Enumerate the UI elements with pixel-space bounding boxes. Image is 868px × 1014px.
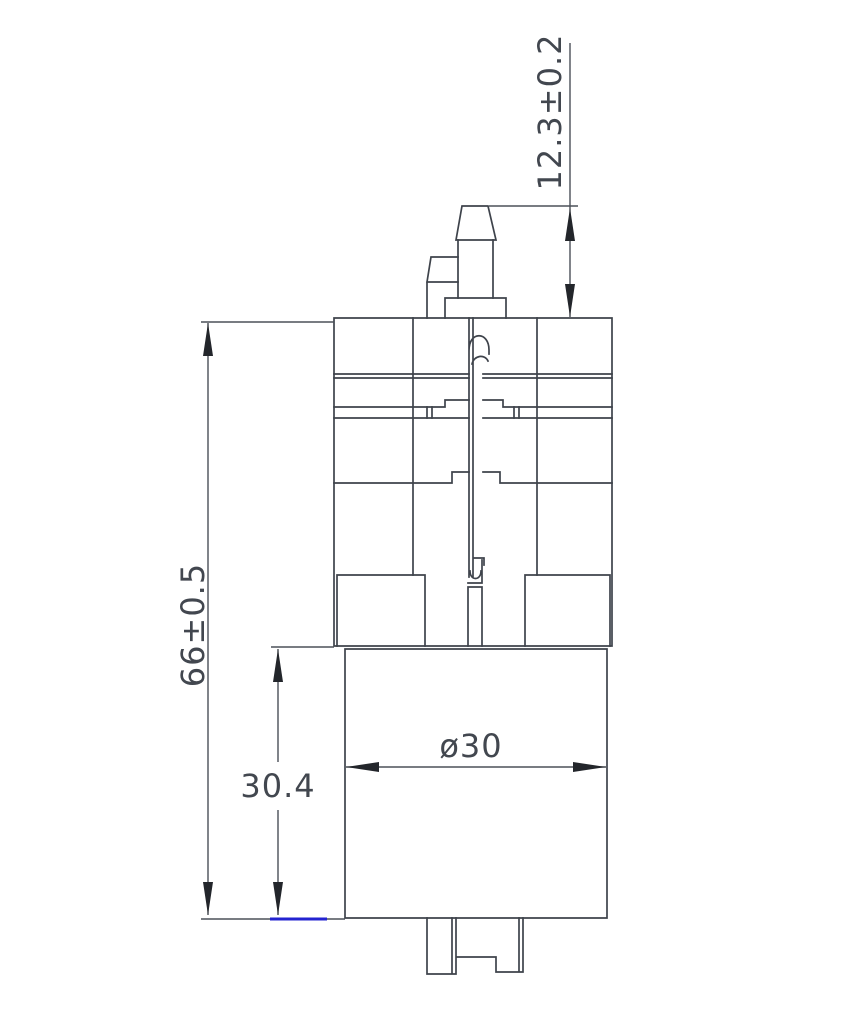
motor-height-arrow-down bbox=[273, 882, 283, 915]
pump-head-section bbox=[334, 318, 612, 646]
dim-overall-height-label: 66±0.5 bbox=[174, 563, 212, 687]
motor-diameter-arrow-left bbox=[346, 762, 379, 772]
nozzle-height-arrow-down bbox=[565, 284, 575, 317]
pump-assembly-drawing: 12.3±0.2 66±0.5 30.4 ø30 bbox=[0, 0, 868, 1014]
nozzle-tip-taper bbox=[456, 206, 496, 240]
motor-diameter-arrow-right bbox=[573, 762, 606, 772]
inlet-nozzle bbox=[427, 206, 506, 318]
nozzle-base bbox=[445, 298, 506, 318]
pump-body-internal-verticals bbox=[413, 318, 537, 575]
nozzle-stem bbox=[458, 240, 493, 298]
drawing-canvas: 12.3±0.2 66±0.5 30.4 ø30 bbox=[0, 0, 868, 1014]
overall-height-arrow-down bbox=[203, 882, 213, 915]
overall-height-arrow-up bbox=[203, 323, 213, 356]
dimension-nozzle-height: 12.3±0.2 bbox=[489, 34, 578, 317]
dimension-motor-diameter: ø30 bbox=[346, 727, 606, 772]
motor-section bbox=[345, 649, 607, 974]
motor-height-arrow-up bbox=[273, 649, 283, 682]
dim-motor-height-label: 30.4 bbox=[240, 767, 315, 805]
pump-lower-blocks bbox=[337, 575, 610, 646]
pump-shaft-channel bbox=[468, 318, 489, 646]
nozzle-side-stub bbox=[427, 257, 458, 318]
dim-motor-diameter-label: ø30 bbox=[439, 727, 502, 765]
nozzle-height-arrow-up bbox=[565, 208, 575, 241]
dimension-overall-height: 66±0.5 bbox=[174, 322, 345, 919]
dimension-motor-height: 30.4 bbox=[240, 647, 334, 915]
motor-bottom-terminals bbox=[427, 918, 523, 974]
motor-outline bbox=[345, 649, 607, 918]
dim-nozzle-height-label: 12.3±0.2 bbox=[531, 34, 569, 191]
